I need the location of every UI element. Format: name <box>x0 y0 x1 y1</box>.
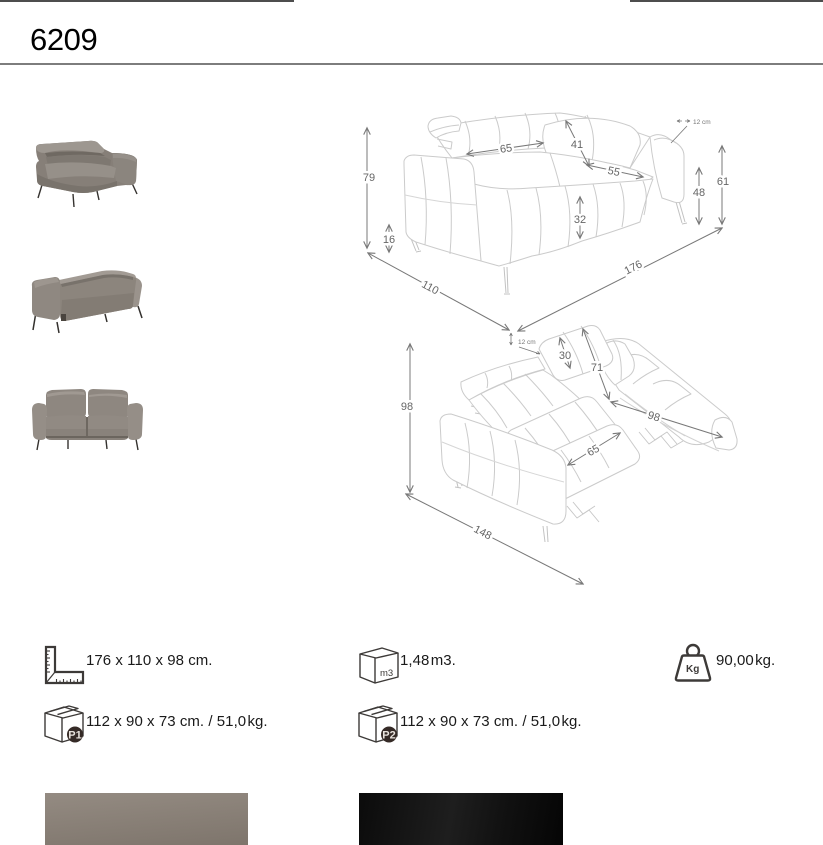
svg-text:P2: P2 <box>382 730 395 742</box>
svg-text:12 cm: 12 cm <box>693 119 711 126</box>
svg-text:65: 65 <box>499 142 513 156</box>
svg-text:79: 79 <box>363 172 375 184</box>
svg-text:Kg: Kg <box>686 664 699 675</box>
svg-text:30: 30 <box>559 350 571 362</box>
svg-text:176: 176 <box>623 258 645 277</box>
svg-text:32: 32 <box>574 214 586 226</box>
svg-text:P1: P1 <box>68 730 81 742</box>
svg-text:48: 48 <box>693 187 705 199</box>
svg-text:71: 71 <box>591 362 603 374</box>
svg-text:148: 148 <box>472 523 494 542</box>
svg-text:m3: m3 <box>380 668 393 679</box>
svg-text:55: 55 <box>607 165 621 179</box>
svg-text:61: 61 <box>717 176 729 188</box>
svg-text:12 cm: 12 cm <box>518 339 536 346</box>
svg-text:110: 110 <box>419 279 440 298</box>
svg-text:41: 41 <box>571 139 583 151</box>
svg-text:98: 98 <box>401 401 413 413</box>
svg-text:16: 16 <box>383 234 395 246</box>
